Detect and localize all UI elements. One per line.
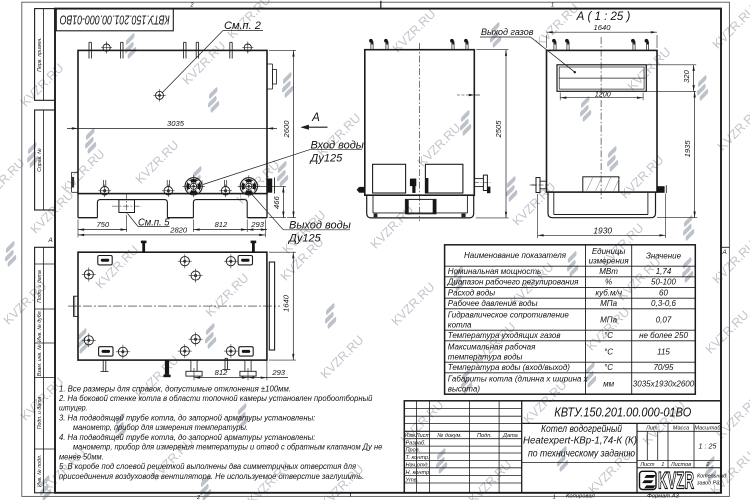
svg-text:812: 812 (215, 220, 228, 229)
svg-text:0,07: 0,07 (656, 315, 672, 324)
svg-text:1 : 25: 1 : 25 (699, 441, 718, 450)
svg-text:°С: °С (604, 363, 613, 372)
svg-text:Утв.: Утв. (405, 477, 419, 483)
svg-text:Единицы: Единицы (592, 247, 626, 256)
svg-text:Ду125: Ду125 (287, 232, 322, 244)
svg-text:1640: 1640 (282, 294, 291, 312)
svg-text:См.п. 2: См.п. 2 (224, 20, 261, 32)
svg-text:2600: 2600 (282, 120, 291, 139)
svg-text:KVZR.RU: KVZR.RU (133, 138, 182, 187)
svg-text:KVZR.RU: KVZR.RU (710, 3, 750, 52)
svg-text:5. В коробе под слоевой решетк: 5. В коробе под слоевой решеткой выполне… (59, 462, 357, 471)
svg-text:измерения: измерения (589, 257, 630, 266)
svg-text:1: 1 (553, 495, 556, 500)
svg-text:не более 250: не более 250 (639, 331, 688, 340)
svg-text:Взам. инв. №: Взам. инв. № (37, 344, 43, 376)
svg-text:Масштаб: Масштаб (694, 425, 721, 431)
svg-text:70/95: 70/95 (653, 363, 674, 372)
svg-text:KVZR.RU: KVZR.RU (625, 45, 674, 94)
svg-text:КВТУ.150.201.00.000-01ВО: КВТУ.150.201.00.000-01ВО (60, 13, 170, 28)
svg-text:°С: °С (604, 331, 613, 340)
svg-text:2505: 2505 (494, 120, 503, 139)
svg-text:МПа: МПа (600, 299, 617, 308)
svg-text:KVZR.RU: KVZR.RU (93, 243, 142, 292)
svg-text:КВТУ.150.201.00.000-01ВО: КВТУ.150.201.00.000-01ВО (554, 405, 691, 420)
svg-text:KVZR.RU: KVZR.RU (703, 308, 750, 357)
svg-text:1930: 1930 (593, 225, 612, 235)
svg-text:штуцер.: штуцер. (59, 404, 88, 413)
svg-text:мм: мм (603, 379, 614, 388)
svg-text:1935: 1935 (683, 140, 692, 158)
svg-text:Н. контр.: Н. контр. (406, 470, 431, 476)
svg-text:МВт: МВт (599, 267, 618, 276)
svg-text:115: 115 (657, 347, 670, 356)
svg-text:Подп. и дата: Подп. и дата (37, 397, 43, 430)
svg-text:Габариты котла (длинна х ширин: Габариты котла (длинна х ширина х (448, 374, 589, 383)
svg-text:1: 1 (551, 3, 554, 9)
svg-text:завод РЗ: завод РЗ (696, 481, 720, 487)
svg-text:Heatexpert-КВр-1,74-К (К): Heatexpert-КВр-1,74-К (К) (523, 435, 637, 446)
svg-text:1. Все размеры для справок, до: 1. Все размеры для справок, допустимые о… (59, 384, 291, 393)
svg-text:№ докум.: № докум. (437, 433, 462, 439)
svg-text:манометр, прибор для измерения: манометр, прибор для измерения температу… (73, 423, 248, 432)
svg-text:Лит.: Лит. (645, 425, 659, 431)
svg-text:Ду125: Ду125 (309, 152, 344, 164)
svg-text:2. На боковой стенке котла в о: 2. На боковой стенке котла в области топ… (58, 394, 373, 403)
svg-text:1200: 1200 (595, 90, 611, 99)
svg-text:Перв. примен.: Перв. примен. (37, 37, 43, 71)
svg-text:МПа: МПа (600, 315, 617, 324)
svg-text:KVZR.RU: KVZR.RU (510, 180, 559, 229)
svg-text:1,74: 1,74 (656, 267, 672, 276)
svg-text:температура воды: температура воды (448, 353, 523, 362)
svg-text:Разраб.: Разраб. (406, 440, 426, 446)
svg-text:Масса: Масса (673, 425, 690, 431)
svg-text:Пров.: Пров. (406, 448, 421, 454)
svg-text:Инв. № дубл.: Инв. № дубл. (37, 310, 43, 342)
svg-text:А ( 1 : 25 ): А ( 1 : 25 ) (576, 11, 631, 23)
svg-text:466: 466 (272, 195, 281, 208)
svg-text:Значение: Значение (646, 251, 682, 260)
svg-text:KVZR.RU: KVZR.RU (389, 280, 438, 329)
svg-text:присоединения воздуховода вент: присоединения воздуховода вентилятора. Н… (59, 472, 364, 481)
svg-text:°С: °С (604, 347, 613, 356)
svg-text:А: А (721, 249, 726, 256)
svg-text:%: % (605, 278, 612, 287)
svg-text:Наименование показателя: Наименование показателя (464, 251, 567, 260)
svg-text:293: 293 (271, 368, 285, 377)
svg-text:Температура уходящих газов: Температура уходящих газов (448, 331, 561, 340)
svg-text:3. На подводящей трубе котла,: 3. На подводящей трубе котла, до запорно… (59, 414, 315, 423)
svg-text:320: 320 (682, 69, 691, 82)
svg-text:по техническому заданию: по техническому заданию (528, 448, 635, 459)
svg-text:812: 812 (215, 368, 228, 377)
svg-text:Т. контр.: Т. контр. (406, 455, 430, 461)
svg-text:KVZR.RU: KVZR.RU (618, 153, 667, 202)
svg-text:Котельный: Котельный (697, 473, 726, 480)
svg-text:манометр, прибор для измерения: манометр, прибор для измерения температу… (73, 443, 383, 452)
svg-text:менее 50мм.: менее 50мм. (59, 452, 104, 461)
svg-text:Номинальная мощность: Номинальная мощность (448, 267, 541, 276)
svg-text:3035: 3035 (167, 119, 185, 128)
svg-text:KVZR.RU: KVZR.RU (390, 7, 439, 56)
svg-text:Рабочее давление воды: Рабочее давление воды (448, 299, 538, 308)
svg-text:KVZR.RU: KVZR.RU (368, 203, 417, 252)
svg-text:2820: 2820 (169, 225, 188, 234)
svg-text:Подп.: Подп. (477, 433, 492, 439)
svg-text:3035х1930х2600: 3035х1930х2600 (633, 379, 695, 388)
svg-text:Нач.отд.: Нач.отд. (406, 462, 430, 468)
svg-text:KVZR.RU: KVZR.RU (415, 121, 464, 170)
svg-text:Максимальная рабочая: Максимальная рабочая (448, 342, 536, 351)
svg-text:А: А (47, 237, 52, 244)
svg-text:высота): высота) (448, 385, 481, 394)
svg-text:60: 60 (659, 288, 668, 297)
svg-text:750: 750 (96, 220, 109, 229)
svg-text:KVZR.RU: KVZR.RU (180, 39, 229, 88)
svg-text:KVZR.RU: KVZR.RU (584, 305, 633, 354)
svg-text:Гидравлическое сопротивление: Гидравлическое сопротивление (448, 310, 570, 319)
svg-text:Температура воды (вход/выход): Температура воды (вход/выход) (448, 363, 570, 372)
svg-text:А: А (311, 112, 320, 124)
svg-text:Дата: Дата (502, 433, 518, 439)
svg-text:50-100: 50-100 (651, 278, 676, 287)
svg-text:KVZR.RU: KVZR.RU (710, 238, 750, 287)
svg-text:Формат А3: Формат А3 (647, 494, 679, 500)
svg-text:KVZR.RU: KVZR.RU (318, 333, 367, 382)
svg-text:Справ. №: Справ. № (37, 148, 43, 172)
svg-text:Подп. и дата: Подп. и дата (37, 270, 43, 303)
svg-text:Диапазон рабочего регулировани: Диапазон рабочего регулирования (447, 278, 579, 287)
svg-text:Лист: Лист (415, 433, 431, 439)
svg-text:293: 293 (250, 220, 264, 229)
svg-text:2: 2 (189, 3, 193, 9)
svg-text:котла: котла (448, 321, 472, 330)
svg-text:KVZR.RU: KVZR.RU (0, 156, 28, 205)
svg-text:Копировал: Копировал (566, 494, 596, 500)
svg-text:2: 2 (196, 495, 200, 500)
svg-text:KVZR.RU: KVZR.RU (203, 271, 252, 320)
svg-text:1640: 1640 (594, 23, 612, 32)
svg-text:4. На подводящей трубе котла,: 4. На подводящей трубе котла, до запорно… (59, 433, 315, 442)
svg-text:куб.м/ч: куб.м/ч (595, 288, 622, 297)
svg-text:Расход воды: Расход воды (448, 288, 495, 297)
svg-text:KVZR.RU: KVZR.RU (398, 398, 447, 447)
svg-text:0,3-0,6: 0,3-0,6 (651, 299, 676, 308)
svg-text:Изм.: Изм. (404, 433, 416, 439)
svg-text:Инв. № подл.: Инв. № подл. (37, 455, 43, 487)
svg-text:Выход газов: Выход газов (481, 27, 534, 37)
svg-text:Лист: Лист (639, 462, 655, 468)
svg-text:См.п. 5: См.п. 5 (138, 216, 170, 228)
svg-text:Котел водогрейный: Котел водогрейный (541, 424, 622, 435)
svg-text:KVZR: KVZR (658, 468, 694, 495)
